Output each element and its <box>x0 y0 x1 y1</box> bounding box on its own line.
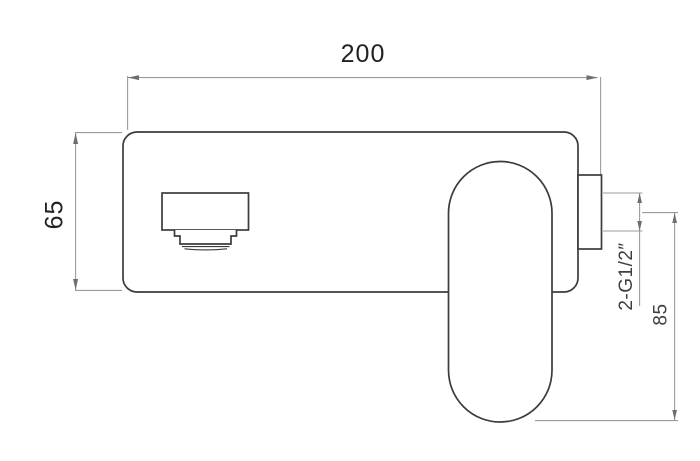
arrow-200-right-icon <box>587 75 598 80</box>
arrow-65-up-icon <box>73 133 78 144</box>
arrow-thread-down-icon <box>637 221 642 231</box>
handle-outline <box>449 162 553 423</box>
dimension-depth-label: 85 <box>652 290 671 340</box>
arrow-thread-up-icon <box>637 193 642 203</box>
technical-drawing-canvas: 200 65 2-G1/2″ 85 <box>0 0 700 461</box>
arrow-85-up-icon <box>672 213 677 223</box>
dimension-height-label: 65 <box>43 185 68 245</box>
arrow-65-down-icon <box>73 279 78 290</box>
dimension-thread-label: 2-G1/2″ <box>617 229 636 324</box>
arrow-200-left-icon <box>128 75 139 80</box>
wall-connector-outline <box>578 175 602 249</box>
faucet-line-art <box>0 0 700 461</box>
dimension-width-label: 200 <box>323 42 403 67</box>
faucet-object <box>123 132 602 422</box>
arrow-85-down-icon <box>672 410 677 420</box>
spout-outline <box>162 193 249 230</box>
spout-aerator-step <box>175 230 237 244</box>
